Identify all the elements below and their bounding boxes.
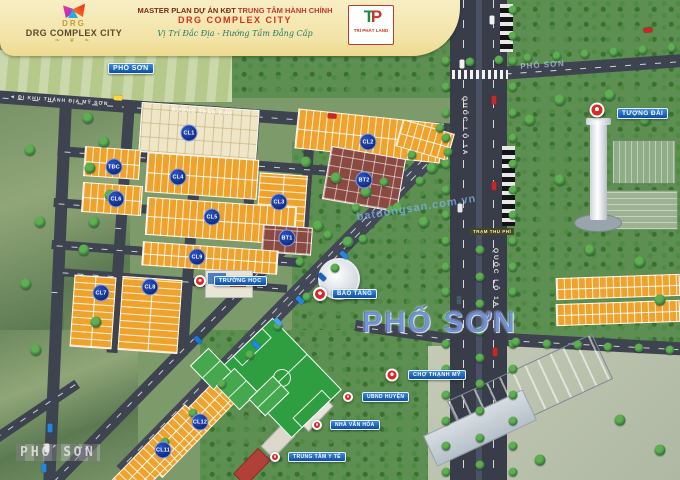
location-pin-icon — [313, 287, 327, 301]
tree-icon — [476, 434, 485, 443]
landmark-label: TƯỢNG ĐÀI — [617, 108, 668, 119]
lot-label-BT2: BT2 — [356, 172, 373, 189]
masterplan-map: PHỐ SƠN batdongsan.com.vn PHỐ SƠN TĐCCL1… — [0, 0, 680, 480]
tree-icon — [509, 442, 518, 451]
drg-logo-mark — [61, 3, 87, 19]
tree-icon — [85, 163, 96, 174]
tree-icon — [442, 468, 451, 477]
masterplan-poster: PHỐ SƠN batdongsan.com.vn PHỐ SƠN TĐCCL1… — [0, 0, 680, 480]
watermark-pixelated: PHỐ SƠN — [16, 444, 100, 461]
lot-label-CL9: CL9 — [189, 249, 206, 266]
tree-icon — [442, 416, 451, 425]
lot-label-CL3: CL3 — [271, 194, 288, 211]
tree-icon — [610, 48, 619, 57]
car-icon — [327, 113, 336, 119]
lot-label-CL6: CL6 — [108, 191, 125, 208]
tree-icon — [313, 221, 324, 232]
road-name-text: QUỐC LỘ 1A — [492, 248, 499, 308]
tree-icon — [91, 317, 102, 328]
car-icon — [492, 182, 497, 191]
tree-icon — [25, 145, 36, 156]
car-icon — [113, 95, 122, 101]
partner-name: TRÍ PHÁT LAND — [349, 28, 393, 33]
tree-icon — [31, 345, 42, 356]
tree-icon — [509, 237, 518, 246]
tree-icon — [509, 211, 518, 220]
terrain-top-center — [232, 50, 454, 98]
tree-icon — [509, 391, 518, 400]
tree-icon — [79, 245, 90, 256]
landmark-label: UBND HUYỆN — [362, 392, 409, 402]
landmark-label: TRUNG TÂM Y TẾ — [288, 452, 346, 462]
tree-icon — [509, 6, 518, 15]
tree-icon — [585, 245, 596, 256]
tree-icon — [442, 391, 451, 400]
tree-icon — [655, 445, 666, 456]
tree-icon — [330, 264, 339, 273]
tree-icon — [444, 148, 453, 157]
tree-icon — [442, 339, 451, 348]
poster-title: MASTER PLAN DỰ ÁN KĐT TRUNG TÂM HÀNH CHÍ… — [130, 6, 340, 38]
tree-icon — [635, 344, 644, 353]
partner-logo-mark: T P — [349, 8, 393, 26]
lot-label-BT1: BT1 — [279, 230, 296, 247]
lot-label-CL5: CL5 — [204, 209, 221, 226]
lot-label-TĐC: TĐC — [106, 159, 123, 176]
tree-icon — [509, 31, 518, 40]
tree-icon — [35, 217, 46, 228]
car-icon — [48, 424, 53, 433]
tree-icon — [217, 380, 226, 389]
tree-icon — [476, 246, 485, 255]
tree-icon — [331, 173, 342, 184]
tree-icon — [476, 380, 485, 389]
tree-icon — [442, 237, 451, 246]
tree-icon — [380, 177, 389, 186]
title-tagline: Vị Trí Đắc Địa - Hướng Tầm Đẳng Cấp — [130, 29, 340, 38]
tree-icon — [442, 83, 451, 92]
tree-icon — [542, 339, 551, 348]
tree-icon — [476, 353, 485, 362]
block-CL4 — [145, 152, 260, 200]
location-pin-icon — [386, 369, 399, 382]
title-line1: MASTER PLAN DỰ ÁN KĐT TRUNG TÂM HÀNH CHÍ… — [130, 6, 340, 15]
landmark-label: NHÀ VĂN HÓA — [330, 420, 380, 430]
tree-icon — [89, 217, 100, 228]
tree-icon — [21, 279, 32, 290]
landmark-label: TRƯỜNG HỌC — [214, 276, 267, 286]
lot-label-CL1: CL1 — [181, 125, 198, 142]
tree-icon — [639, 46, 648, 55]
car-icon — [42, 464, 47, 473]
car-icon — [457, 296, 462, 305]
tree-icon — [535, 455, 546, 466]
tree-icon — [555, 95, 566, 106]
tree-icon — [666, 346, 675, 355]
tree-icon — [655, 295, 666, 306]
lot-label-CL7: CL7 — [93, 285, 110, 302]
lot-label-CL11: CL11 — [155, 442, 172, 459]
tree-icon — [436, 124, 445, 133]
road-name-text: QUỐC LỘ 1A — [461, 96, 468, 156]
apartment-block-a — [612, 140, 676, 184]
tree-icon — [525, 115, 536, 126]
tree-icon — [442, 57, 451, 66]
tree-icon — [573, 341, 582, 350]
tree-icon — [415, 177, 424, 186]
partner-logo-t: T — [364, 7, 370, 26]
car-icon — [460, 60, 465, 69]
tree-icon — [509, 57, 518, 66]
tree-icon — [509, 185, 518, 194]
car-icon — [490, 16, 495, 25]
tree-icon — [343, 237, 354, 248]
tree-icon — [509, 134, 518, 143]
logo-project-name: DRG COMPLEX CITY — [14, 28, 134, 38]
lot-label-CL12: CL12 — [192, 414, 209, 431]
tree-icon — [509, 83, 518, 92]
location-pin-icon — [270, 452, 280, 462]
tree-icon — [509, 365, 518, 374]
tree-icon — [324, 231, 333, 240]
tree-icon — [408, 150, 417, 159]
tree-icon — [83, 113, 94, 124]
tree-icon — [494, 56, 503, 65]
tree-icon — [509, 108, 518, 117]
tree-icon — [604, 342, 613, 351]
location-pin-icon — [194, 275, 206, 287]
tree-icon — [419, 217, 430, 228]
tree-icon — [605, 90, 616, 101]
tree-icon — [476, 461, 485, 470]
tree-icon — [296, 258, 305, 267]
tree-icon — [509, 416, 518, 425]
tree-icon — [581, 50, 590, 59]
drg-logo: DRG DRG COMPLEX CITY ❧ ❦ ❧ — [14, 3, 134, 44]
landmark-label: BẢO TÀNG — [332, 289, 377, 299]
tree-icon — [442, 134, 451, 143]
pedestrian-crossing — [452, 70, 508, 79]
lot-label-CL8: CL8 — [142, 279, 159, 296]
title-line1-left: MASTER PLAN DỰ ÁN KĐT — [138, 6, 236, 15]
monument-tower — [590, 124, 607, 220]
location-pin-icon — [590, 103, 605, 118]
location-pin-icon — [343, 392, 353, 402]
car-icon — [643, 27, 652, 33]
tree-icon — [245, 351, 254, 360]
tree-icon — [509, 468, 518, 477]
tree-icon — [99, 137, 110, 148]
watermark-pho-son: PHỐ SƠN — [362, 306, 517, 340]
tree-icon — [442, 262, 451, 271]
landmark-label: PHỐ SƠN — [108, 63, 154, 74]
tree-icon — [359, 235, 368, 244]
tree-icon — [427, 163, 438, 174]
tree-icon — [442, 442, 451, 451]
lot-label-CL4: CL4 — [170, 169, 187, 186]
tree-icon — [509, 262, 518, 271]
tree-icon — [442, 160, 451, 169]
road-name-text: TRẠM THU PHÍ — [470, 228, 514, 235]
tree-icon — [668, 44, 677, 53]
location-pin-icon — [312, 420, 322, 430]
tree-icon — [442, 108, 451, 117]
tree-icon — [635, 257, 646, 268]
tree-icon — [615, 415, 626, 426]
tree-icon — [442, 211, 451, 220]
tree-icon — [555, 175, 566, 186]
title-line2: DRG COMPLEX CITY — [130, 15, 340, 26]
tree-icon — [442, 185, 451, 194]
partner-logo-box: T P TRÍ PHÁT LAND — [348, 5, 394, 45]
block-CL7 — [70, 275, 117, 350]
car-icon — [492, 96, 497, 105]
car-icon — [493, 348, 498, 357]
header-banner: DRG DRG COMPLEX CITY ❧ ❦ ❧ MASTER PLAN D… — [0, 0, 460, 56]
tree-icon — [509, 288, 518, 297]
lot-label-CL2: CL2 — [360, 134, 377, 151]
tree-icon — [466, 58, 475, 67]
tree-icon — [476, 272, 485, 281]
title-line1-right: TRUNG TÂM HÀNH CHÍNH — [238, 6, 333, 15]
tree-icon — [509, 160, 518, 169]
logo-laurel-ornament: ❧ ❦ ❧ — [14, 38, 134, 44]
landmark-label: CHỢ THẠNH MỸ — [408, 370, 466, 380]
partner-logo-p: P — [371, 7, 378, 26]
tree-icon — [476, 407, 485, 416]
tree-icon — [301, 157, 312, 168]
monument-tower-cap — [586, 118, 611, 125]
tree-icon — [442, 288, 451, 297]
logo-brand-text: DRG — [14, 19, 134, 28]
